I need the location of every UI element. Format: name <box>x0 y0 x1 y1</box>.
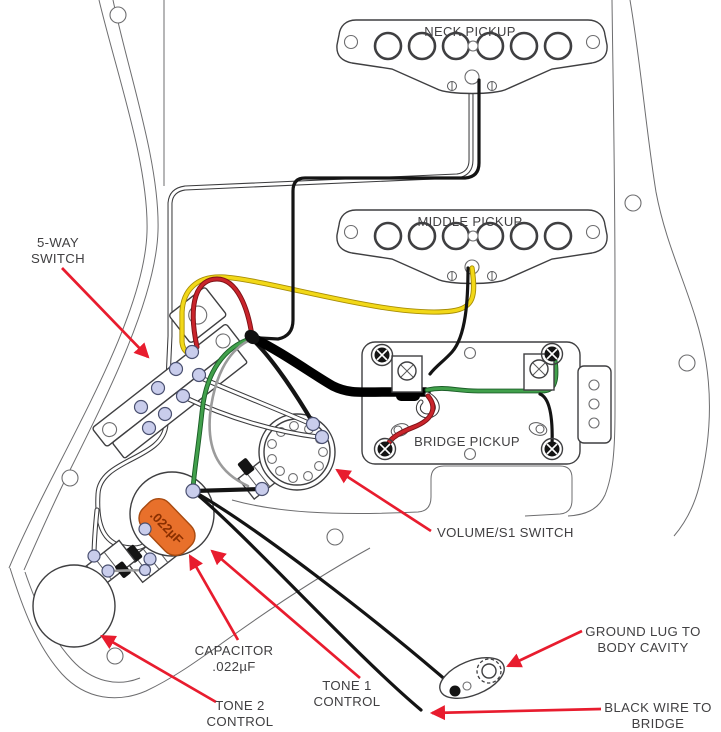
tone2-label-line2: CONTROL <box>207 714 274 729</box>
bridge-wire-label-line1: BLACK WIRE TO <box>604 700 711 715</box>
black-jumper-tone1-volume <box>193 489 261 491</box>
arrow-five-way-switch <box>62 268 148 357</box>
black-wire-to-bridge <box>193 491 421 710</box>
tone1-label-line2: CONTROL <box>314 694 381 709</box>
wiring-diagram: NECK PICKUP MIDDLE PICKUP <box>0 0 721 732</box>
callout-labels: 5-WAY SWITCH VOLUME/S1 SWITCH CAPACITOR … <box>31 235 712 731</box>
neck-pickup: NECK PICKUP <box>337 20 607 94</box>
middle-pickup-label: MIDDLE PICKUP <box>417 214 522 229</box>
guitar-body-outline <box>9 0 710 698</box>
tone2-pot <box>33 540 139 647</box>
capacitor-label-line2: .022µF <box>212 659 255 674</box>
five-way-label-line2: SWITCH <box>31 251 85 266</box>
capacitor-label-line1: CAPACITOR <box>195 643 274 658</box>
ground-solder-joint <box>450 686 461 697</box>
arrow-volume-s1 <box>337 470 431 531</box>
tone2-label-line1: TONE 2 <box>215 698 265 713</box>
neck-pickup-label: NECK PICKUP <box>424 24 515 39</box>
volume-s1-label: VOLUME/S1 SWITCH <box>437 525 574 540</box>
ground-label-line2: BODY CAVITY <box>597 640 688 655</box>
ground-label-line1: GROUND LUG TO <box>585 624 700 639</box>
arrow-black-wire-bridge <box>432 709 601 713</box>
bridge-wire-label-line2: BRIDGE <box>632 716 685 731</box>
diagram-canvas: NECK PICKUP MIDDLE PICKUP <box>0 0 721 732</box>
arrow-ground-lug <box>508 631 582 666</box>
tone1-label-line1: TONE 1 <box>322 678 372 693</box>
bridge-pickup-label: BRIDGE PICKUP <box>414 434 520 449</box>
ground-lug-star-hole <box>477 659 501 683</box>
ground-lug <box>434 650 510 707</box>
five-way-label-line1: 5-WAY <box>37 235 79 250</box>
